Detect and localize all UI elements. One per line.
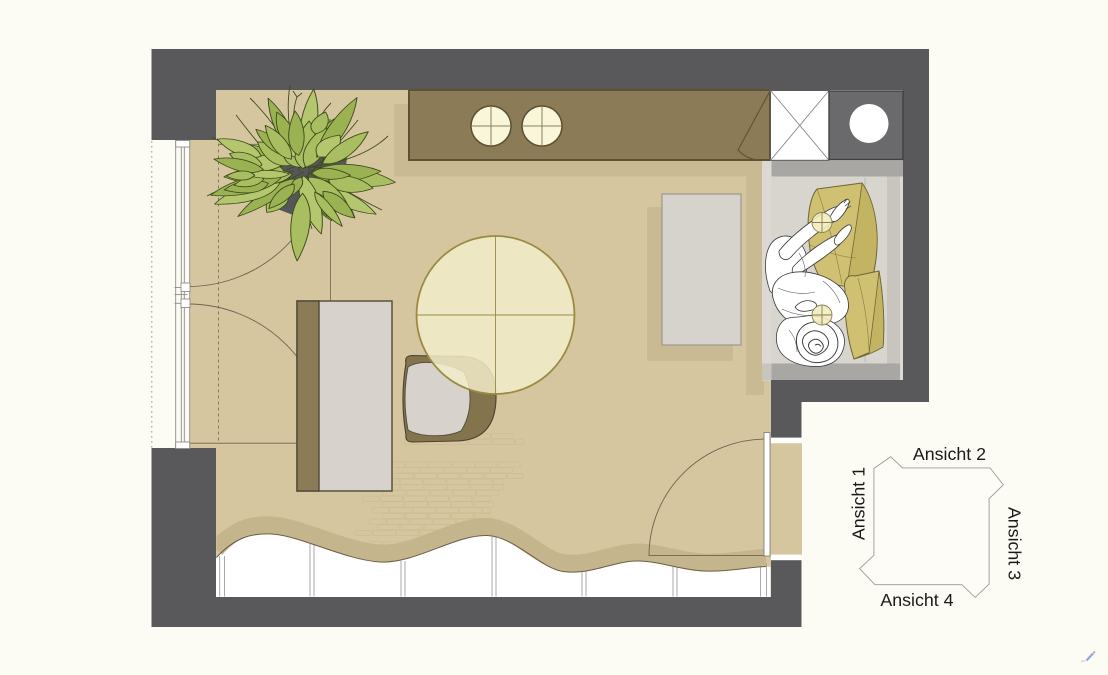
svg-text:Ansicht 2: Ansicht 2 [913, 444, 986, 464]
svg-text:Ansicht 3: Ansicht 3 [1005, 507, 1025, 580]
svg-text:Ansicht 4: Ansicht 4 [880, 590, 953, 610]
svg-text:Ansicht 1: Ansicht 1 [849, 467, 869, 540]
